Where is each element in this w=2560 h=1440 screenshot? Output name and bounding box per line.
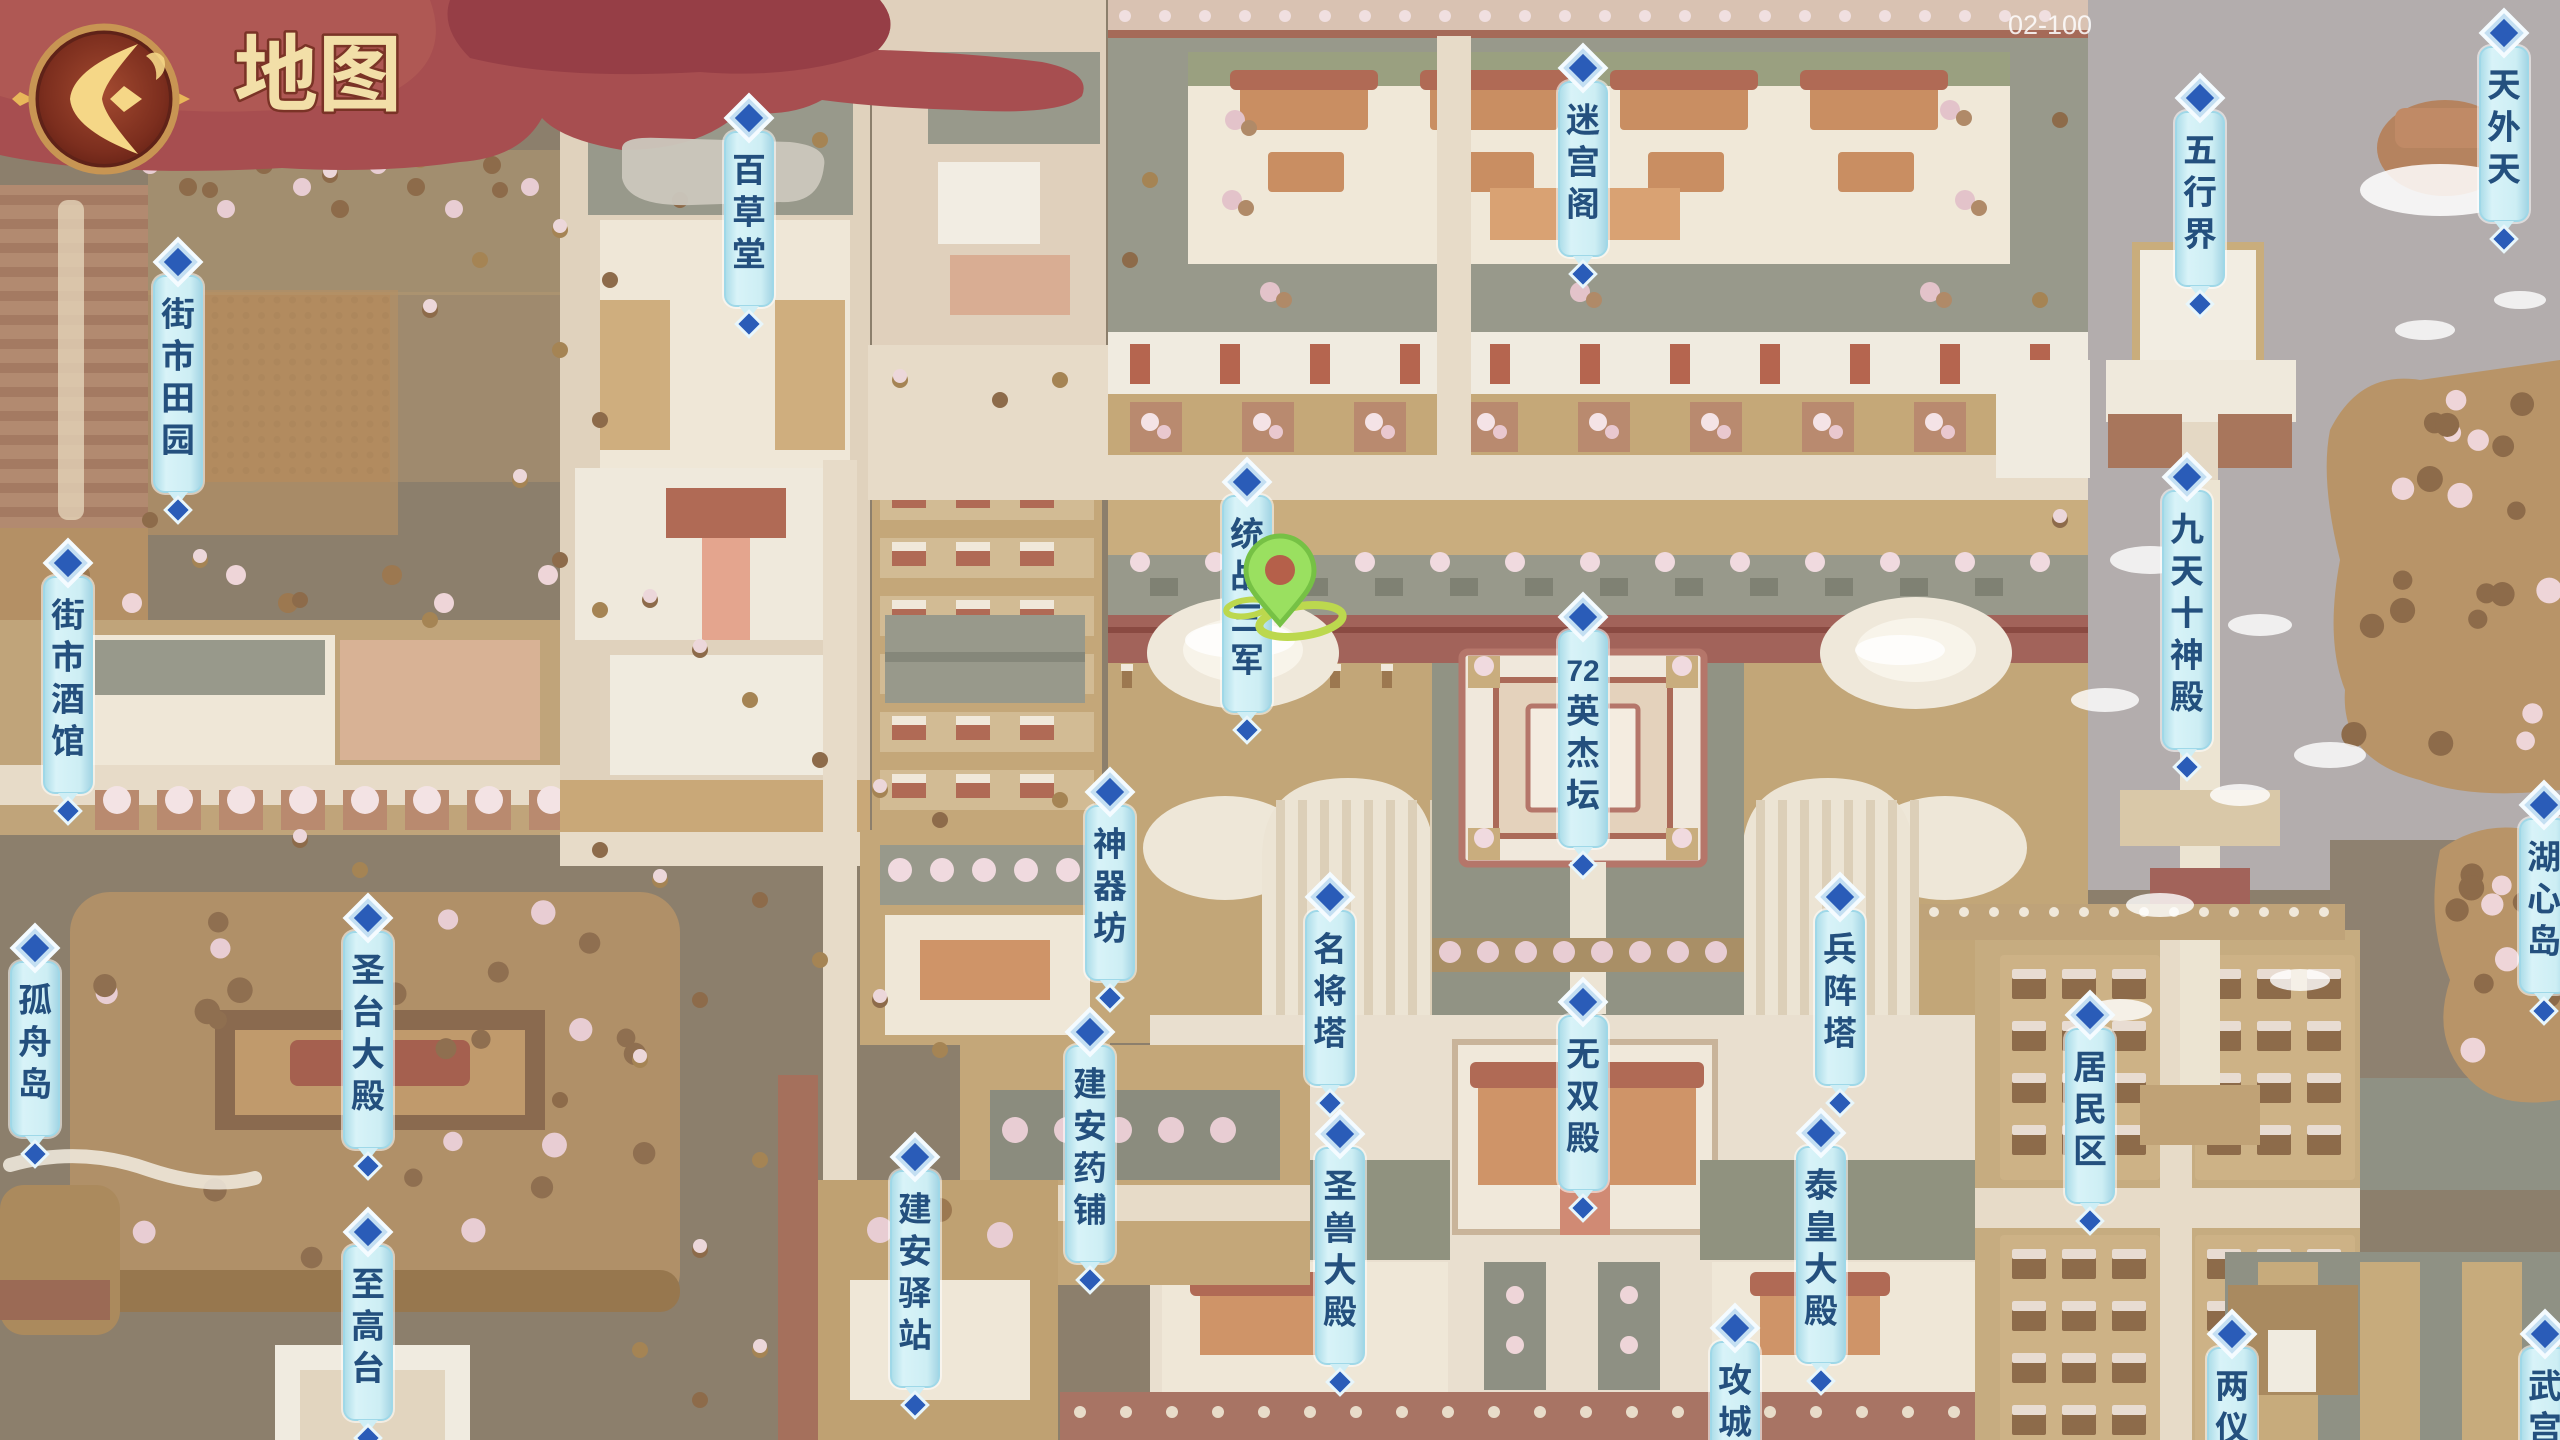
svg-text:72: 72 <box>1566 655 1599 688</box>
svg-text:02-100: 02-100 <box>2008 10 2092 40</box>
